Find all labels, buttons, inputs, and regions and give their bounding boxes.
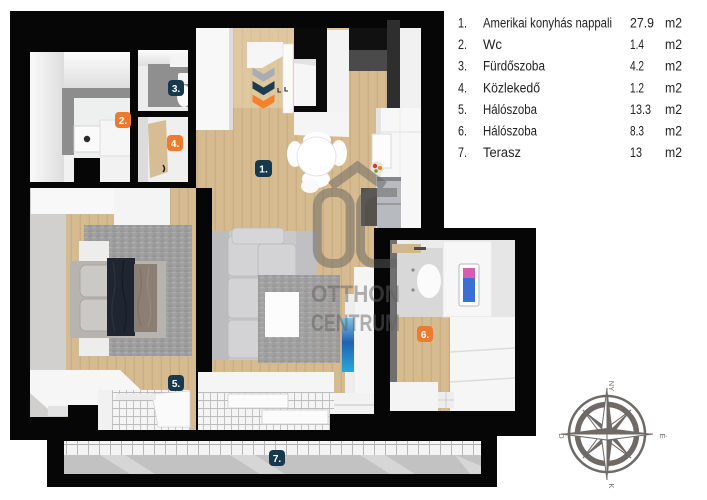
svg-text:Közlekedő: Közlekedő bbox=[483, 80, 540, 95]
svg-text:4.: 4. bbox=[171, 139, 180, 150]
svg-text:6.: 6. bbox=[458, 124, 467, 139]
svg-text:6.: 6. bbox=[421, 330, 430, 341]
svg-text:m2: m2 bbox=[665, 59, 682, 74]
svg-text:13.3: 13.3 bbox=[630, 102, 651, 117]
svg-text:13: 13 bbox=[630, 145, 642, 160]
svg-text:1.: 1. bbox=[259, 164, 268, 176]
svg-text:D: D bbox=[557, 433, 566, 439]
svg-text:NY: NY bbox=[607, 381, 616, 391]
svg-text:OTTHON: OTTHON bbox=[311, 281, 400, 308]
svg-text:É: É bbox=[658, 433, 667, 438]
svg-text:1.4: 1.4 bbox=[630, 37, 644, 52]
svg-text:m2: m2 bbox=[665, 145, 682, 160]
svg-text:m2: m2 bbox=[665, 102, 682, 117]
svg-text:2.: 2. bbox=[458, 37, 467, 52]
svg-text:Hálószoba: Hálószoba bbox=[483, 124, 537, 139]
svg-text:m2: m2 bbox=[665, 124, 682, 139]
svg-text:3.: 3. bbox=[172, 84, 181, 95]
svg-text:1.: 1. bbox=[458, 16, 467, 31]
svg-text:1.2: 1.2 bbox=[630, 80, 644, 95]
svg-text:3.: 3. bbox=[458, 59, 467, 74]
svg-text:7.: 7. bbox=[273, 454, 282, 465]
svg-text:m2: m2 bbox=[665, 80, 682, 95]
svg-text:m2: m2 bbox=[665, 37, 682, 52]
svg-text:4.: 4. bbox=[458, 80, 467, 95]
svg-text:8.3: 8.3 bbox=[630, 124, 644, 139]
svg-text:5.: 5. bbox=[458, 102, 467, 117]
svg-text:4.2: 4.2 bbox=[630, 59, 644, 74]
svg-text:Fürdőszoba: Fürdőszoba bbox=[483, 59, 545, 74]
svg-text:5.: 5. bbox=[172, 379, 181, 390]
svg-text:m2: m2 bbox=[665, 16, 682, 31]
svg-text:7.: 7. bbox=[458, 145, 467, 160]
svg-text:Amerikai konyhás nappali: Amerikai konyhás nappali bbox=[483, 16, 612, 31]
svg-text:Wc: Wc bbox=[483, 37, 502, 52]
svg-text:27.9: 27.9 bbox=[630, 16, 654, 31]
svg-text:K: K bbox=[607, 483, 616, 488]
svg-text:2.: 2. bbox=[119, 116, 128, 127]
svg-text:Hálószoba: Hálószoba bbox=[483, 102, 537, 117]
svg-text:Terasz: Terasz bbox=[483, 145, 521, 160]
svg-text:CENTRUM: CENTRUM bbox=[311, 310, 400, 337]
